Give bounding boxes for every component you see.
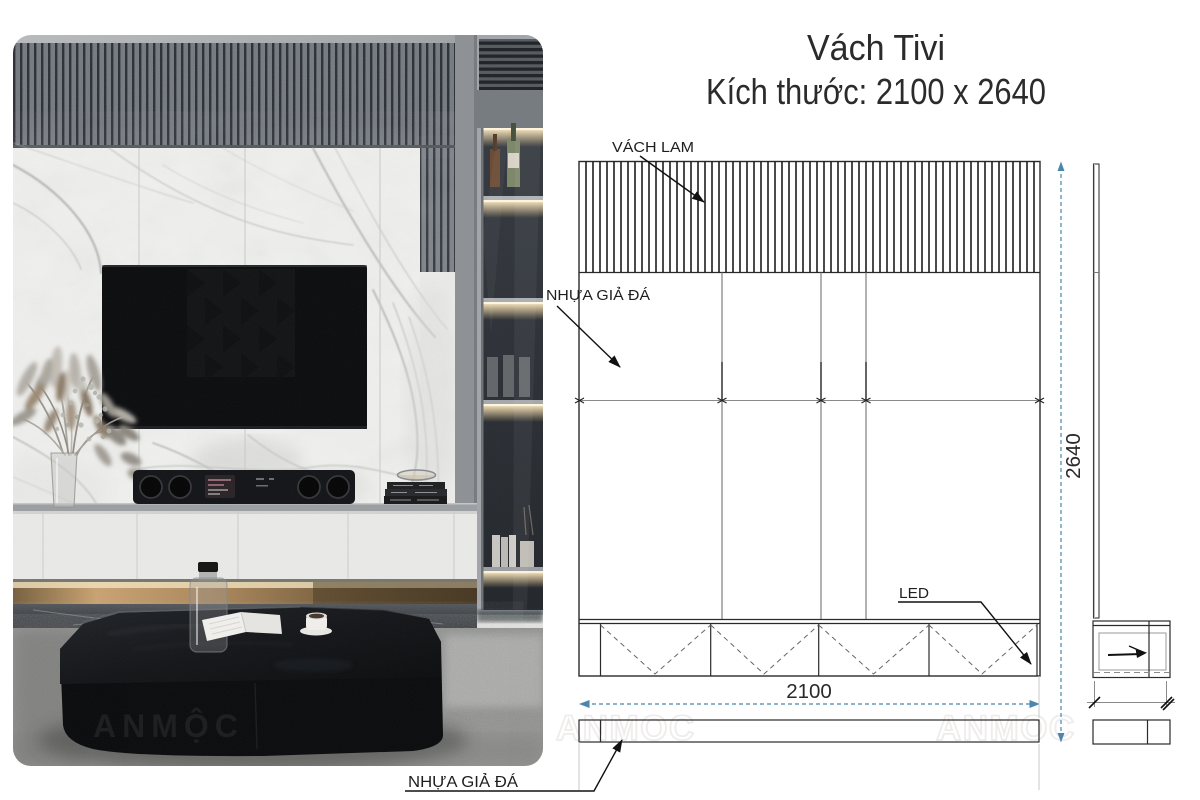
- svg-text:2100: 2100: [786, 680, 832, 703]
- svg-text:LED: LED: [899, 585, 929, 602]
- svg-text:2640: 2640: [1062, 433, 1085, 479]
- svg-text:NHỰA GIẢ ĐÁ: NHỰA GIẢ ĐÁ: [408, 774, 519, 791]
- svg-text:Vách Tivi: Vách Tivi: [807, 27, 945, 68]
- svg-text:NHỰA GIẢ ĐÁ: NHỰA GIẢ ĐÁ: [546, 287, 650, 304]
- svg-text:Kích thước: 2100 x 2640: Kích thước: 2100 x 2640: [706, 71, 1046, 112]
- svg-text:VÁCH LAM: VÁCH LAM: [612, 139, 694, 156]
